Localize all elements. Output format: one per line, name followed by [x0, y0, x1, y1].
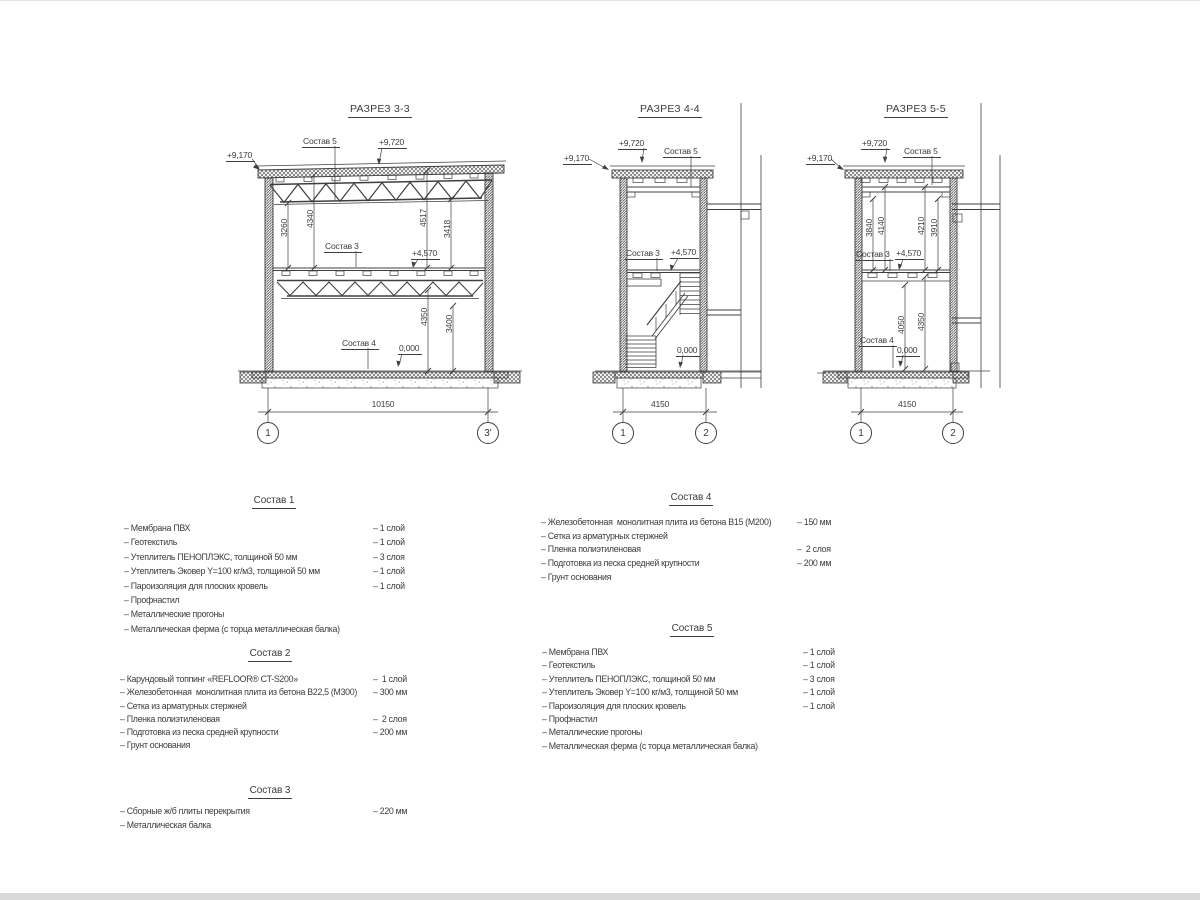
item-qty: – 3 слоя: [803, 673, 835, 686]
item-name: – Пленка полиэтиленовая: [541, 543, 797, 557]
list-item: – Пароизоляция для плоских кровель– 1 сл…: [124, 579, 424, 593]
item-qty: – 200 мм: [373, 726, 407, 739]
item-name: – Грунт основания: [120, 739, 373, 752]
composition-list-1: Состав 1 – Мембрана ПВХ– 1 слой – Геотек…: [124, 495, 424, 636]
list-item: – Пленка полиэтиленовая– 2 слоя: [541, 543, 841, 557]
dim-value: 3400: [444, 315, 454, 333]
item-name: – Пароизоляция для плоских кровель: [124, 579, 373, 593]
grid-bubble-1: 1: [612, 422, 634, 444]
level-mark: 0,000: [896, 345, 920, 357]
list-item: – Железобетонная монолитная плита из бет…: [120, 686, 420, 699]
dim-value: 4050: [896, 316, 906, 334]
item-name: – Металлическая ферма (с торца металличе…: [542, 740, 803, 753]
item-name: – Геотекстиль: [124, 535, 373, 549]
item-name: – Подготовка из песка средней крупности: [120, 726, 373, 739]
list-item: – Утеплитель Эковер Y=100 кг/м3, толщино…: [124, 564, 424, 578]
section-5-5: РАЗРЕЗ 5-5 +9,170 +9,720 Состав 5 3840 4…: [795, 95, 1035, 455]
list-item: – Металлическая ферма (с торца металличе…: [124, 622, 424, 636]
leader-label-ground: Состав 4: [341, 338, 379, 350]
item-qty: – 300 мм: [373, 686, 407, 699]
item-name: – Сетка из арматурных стержней: [120, 700, 373, 713]
dim-value: 4350: [419, 308, 429, 326]
item-qty: – 3 слоя: [373, 550, 405, 564]
list-item: – Геотекстиль– 1 слой: [542, 659, 842, 672]
list-title-text: Состав 5: [670, 623, 715, 637]
list-item: – Пароизоляция для плоских кровель– 1 сл…: [542, 700, 842, 713]
section-4-4: РАЗРЕЗ 4-4 +9,170 +9,720 Состав 5 Состав…: [555, 95, 795, 455]
list-item: – Сетка из арматурных стержней: [120, 700, 420, 713]
width-dim: 10150: [363, 399, 403, 409]
grid-axis-label: 2: [950, 428, 956, 439]
item-name: – Мембрана ПВХ: [542, 646, 803, 659]
list-item: – Сетка из арматурных стержней: [541, 530, 841, 544]
item-qty: – 1 слой: [373, 564, 405, 578]
list-item: – Подготовка из песка средней крупности–…: [120, 726, 420, 739]
list-title-text: Состав 2: [248, 648, 293, 662]
item-name: – Металлическая балка: [120, 819, 373, 833]
list-item: – Мембрана ПВХ– 1 слой: [542, 646, 842, 659]
section-title: РАЗРЕЗ 5-5: [884, 103, 948, 118]
item-name: – Пароизоляция для плоских кровель: [542, 700, 803, 713]
list-item: – Металлическая балка: [120, 819, 420, 833]
dim-value: 4210: [916, 217, 926, 235]
list-title: Состав 1: [124, 495, 424, 506]
item-name: – Сборные ж/б плиты перекрытия: [120, 805, 373, 819]
level-mark: +9,170: [563, 153, 592, 165]
grid-bubble-3: 3': [477, 422, 499, 444]
leader-label-floor: Состав 3: [324, 241, 362, 253]
item-qty: – 220 мм: [373, 805, 407, 819]
level-mark: +9,170: [806, 153, 835, 165]
item-name: – Грунт основания: [541, 571, 797, 585]
level-mark: 0,000: [676, 345, 700, 357]
item-name: – Карундовый топпинг «REFLOOR® CT-S200»: [120, 673, 373, 686]
level-mark: +4,570: [670, 247, 699, 259]
list-title: Состав 2: [120, 648, 420, 659]
leader-label-ground: Состав 4: [859, 335, 897, 347]
list-title-text: Состав 4: [669, 492, 714, 506]
item-name: – Пленка полиэтиленовая: [120, 713, 373, 726]
list-item: – Металлические прогоны: [124, 607, 424, 621]
item-qty: – 1 слой: [373, 521, 405, 535]
level-mark: +9,720: [618, 138, 647, 150]
item-name: – Утеплитель Эковер Y=100 кг/м3, толщино…: [542, 686, 803, 699]
list-item: – Карундовый топпинг «REFLOOR® CT-S200»–…: [120, 673, 420, 686]
grid-bubble-2: 2: [695, 422, 717, 444]
level-mark: +9,720: [378, 137, 407, 149]
list-title-text: Состав 1: [252, 495, 297, 509]
item-qty: – 2 слоя: [373, 713, 407, 726]
item-name: – Сетка из арматурных стержней: [541, 530, 797, 544]
item-name: – Профнастил: [542, 713, 803, 726]
item-name: – Подготовка из песка средней крупности: [541, 557, 797, 571]
item-qty: – 1 слой: [373, 579, 405, 593]
list-item: – Металлическая ферма (с торца металличе…: [542, 740, 842, 753]
grid-axis-label: 1: [265, 428, 271, 439]
list-item: – Грунт основания: [541, 571, 841, 585]
item-qty: – 1 слой: [803, 700, 835, 713]
dim-value: 3910: [929, 219, 939, 237]
list-item: – Железобетонная монолитная плита из бет…: [541, 516, 841, 530]
composition-list-4: Состав 4 – Железобетонная монолитная пли…: [541, 492, 841, 585]
list-title-text: Состав 3: [248, 785, 293, 799]
list-title: Состав 3: [120, 785, 420, 796]
dim-value: 4140: [876, 217, 886, 235]
item-name: – Утеплитель ПЕНОПЛЭКС, толщиной 50 мм: [542, 673, 803, 686]
item-qty: – 1 слой: [373, 535, 405, 549]
item-qty: – 150 мм: [797, 516, 831, 530]
item-name: – Утеплитель ПЕНОПЛЭКС, толщиной 50 мм: [124, 550, 373, 564]
grid-bubble-1: 1: [257, 422, 279, 444]
list-item: – Утеплитель ПЕНОПЛЭКС, толщиной 50 мм– …: [542, 673, 842, 686]
composition-list-2: Состав 2 – Карундовый топпинг «REFLOOR® …: [120, 648, 420, 753]
leader-label-roof: Состав 5: [302, 136, 340, 148]
item-qty: – 1 слой: [373, 673, 407, 686]
composition-list-5: Состав 5 – Мембрана ПВХ– 1 слой – Геотек…: [542, 623, 842, 753]
level-mark: 0,000: [398, 343, 422, 355]
list-item: – Профнастил: [542, 713, 842, 726]
grid-axis-label: 2: [703, 428, 709, 439]
item-name: – Железобетонная монолитная плита из бет…: [541, 516, 797, 530]
grid-axis-label: 1: [858, 428, 864, 439]
dim-value: 4517: [418, 209, 428, 227]
item-name: – Железобетонная монолитная плита из бет…: [120, 686, 373, 699]
list-item: – Сборные ж/б плиты перекрытия– 220 мм: [120, 805, 420, 819]
level-mark: +9,720: [861, 138, 890, 150]
dim-value: 3418: [442, 220, 452, 238]
item-name: – Утеплитель Эковер Y=100 кг/м3, толщино…: [124, 564, 373, 578]
section-title: РАЗРЕЗ 4-4: [638, 103, 702, 118]
item-name: – Металлическая ферма (с торца металличе…: [124, 622, 373, 636]
item-qty: – 200 мм: [797, 557, 831, 571]
item-qty: – 2 слоя: [797, 543, 831, 557]
dim-value: 4350: [916, 313, 926, 331]
grid-bubble-2: 2: [942, 422, 964, 444]
leader-label-roof: Состав 5: [903, 146, 941, 158]
item-name: – Металлические прогоны: [542, 726, 803, 739]
list-item: – Геотекстиль– 1 слой: [124, 535, 424, 549]
grid-axis-label: 1: [620, 428, 626, 439]
dim-value: 4340: [305, 210, 315, 228]
item-name: – Мембрана ПВХ: [124, 521, 373, 535]
list-item: – Утеплитель ПЕНОПЛЭКС, толщиной 50 мм– …: [124, 550, 424, 564]
item-name: – Профнастил: [124, 593, 373, 607]
section-title: РАЗРЕЗ 3-3: [348, 103, 412, 118]
leader-label-floor: Состав 3: [855, 249, 893, 261]
list-item: – Профнастил: [124, 593, 424, 607]
list-item: – Утеплитель Эковер Y=100 кг/м3, толщино…: [542, 686, 842, 699]
drawing-sheet: { "page": {"background": "#ffffff", "edg…: [0, 0, 1200, 900]
composition-list-3: Состав 3 – Сборные ж/б плиты перекрытия–…: [120, 785, 420, 832]
list-title: Состав 5: [542, 623, 842, 634]
dim-value: 3260: [279, 219, 289, 237]
item-name: – Металлические прогоны: [124, 607, 373, 621]
page-bottom-edge: [0, 893, 1200, 900]
leader-label-roof: Состав 5: [663, 146, 701, 158]
level-mark: +4,570: [411, 248, 440, 260]
page-top-edge: [0, 0, 1200, 1]
item-qty: – 1 слой: [803, 686, 835, 699]
list-item: – Подготовка из песка средней крупности–…: [541, 557, 841, 571]
width-dim: 4150: [640, 399, 680, 409]
item-qty: – 1 слой: [803, 659, 835, 672]
list-item: – Металлические прогоны: [542, 726, 842, 739]
list-item: – Мембрана ПВХ– 1 слой: [124, 521, 424, 535]
grid-axis-label: 3': [484, 428, 491, 439]
level-mark: +4,570: [895, 248, 924, 260]
item-name: – Геотекстиль: [542, 659, 803, 672]
list-item: – Грунт основания: [120, 739, 420, 752]
width-dim: 4150: [887, 399, 927, 409]
level-mark: +9,170: [226, 150, 255, 162]
item-qty: – 1 слой: [803, 646, 835, 659]
leader-label-floor: Состав 3: [625, 248, 663, 260]
list-title: Состав 4: [541, 492, 841, 503]
section-3-3: РАЗРЕЗ 3-3 +9,170 Состав 5 +9,720 3260 4…: [230, 95, 550, 455]
list-item: – Пленка полиэтиленовая– 2 слоя: [120, 713, 420, 726]
grid-bubble-1: 1: [850, 422, 872, 444]
dim-value: 3840: [864, 219, 874, 237]
